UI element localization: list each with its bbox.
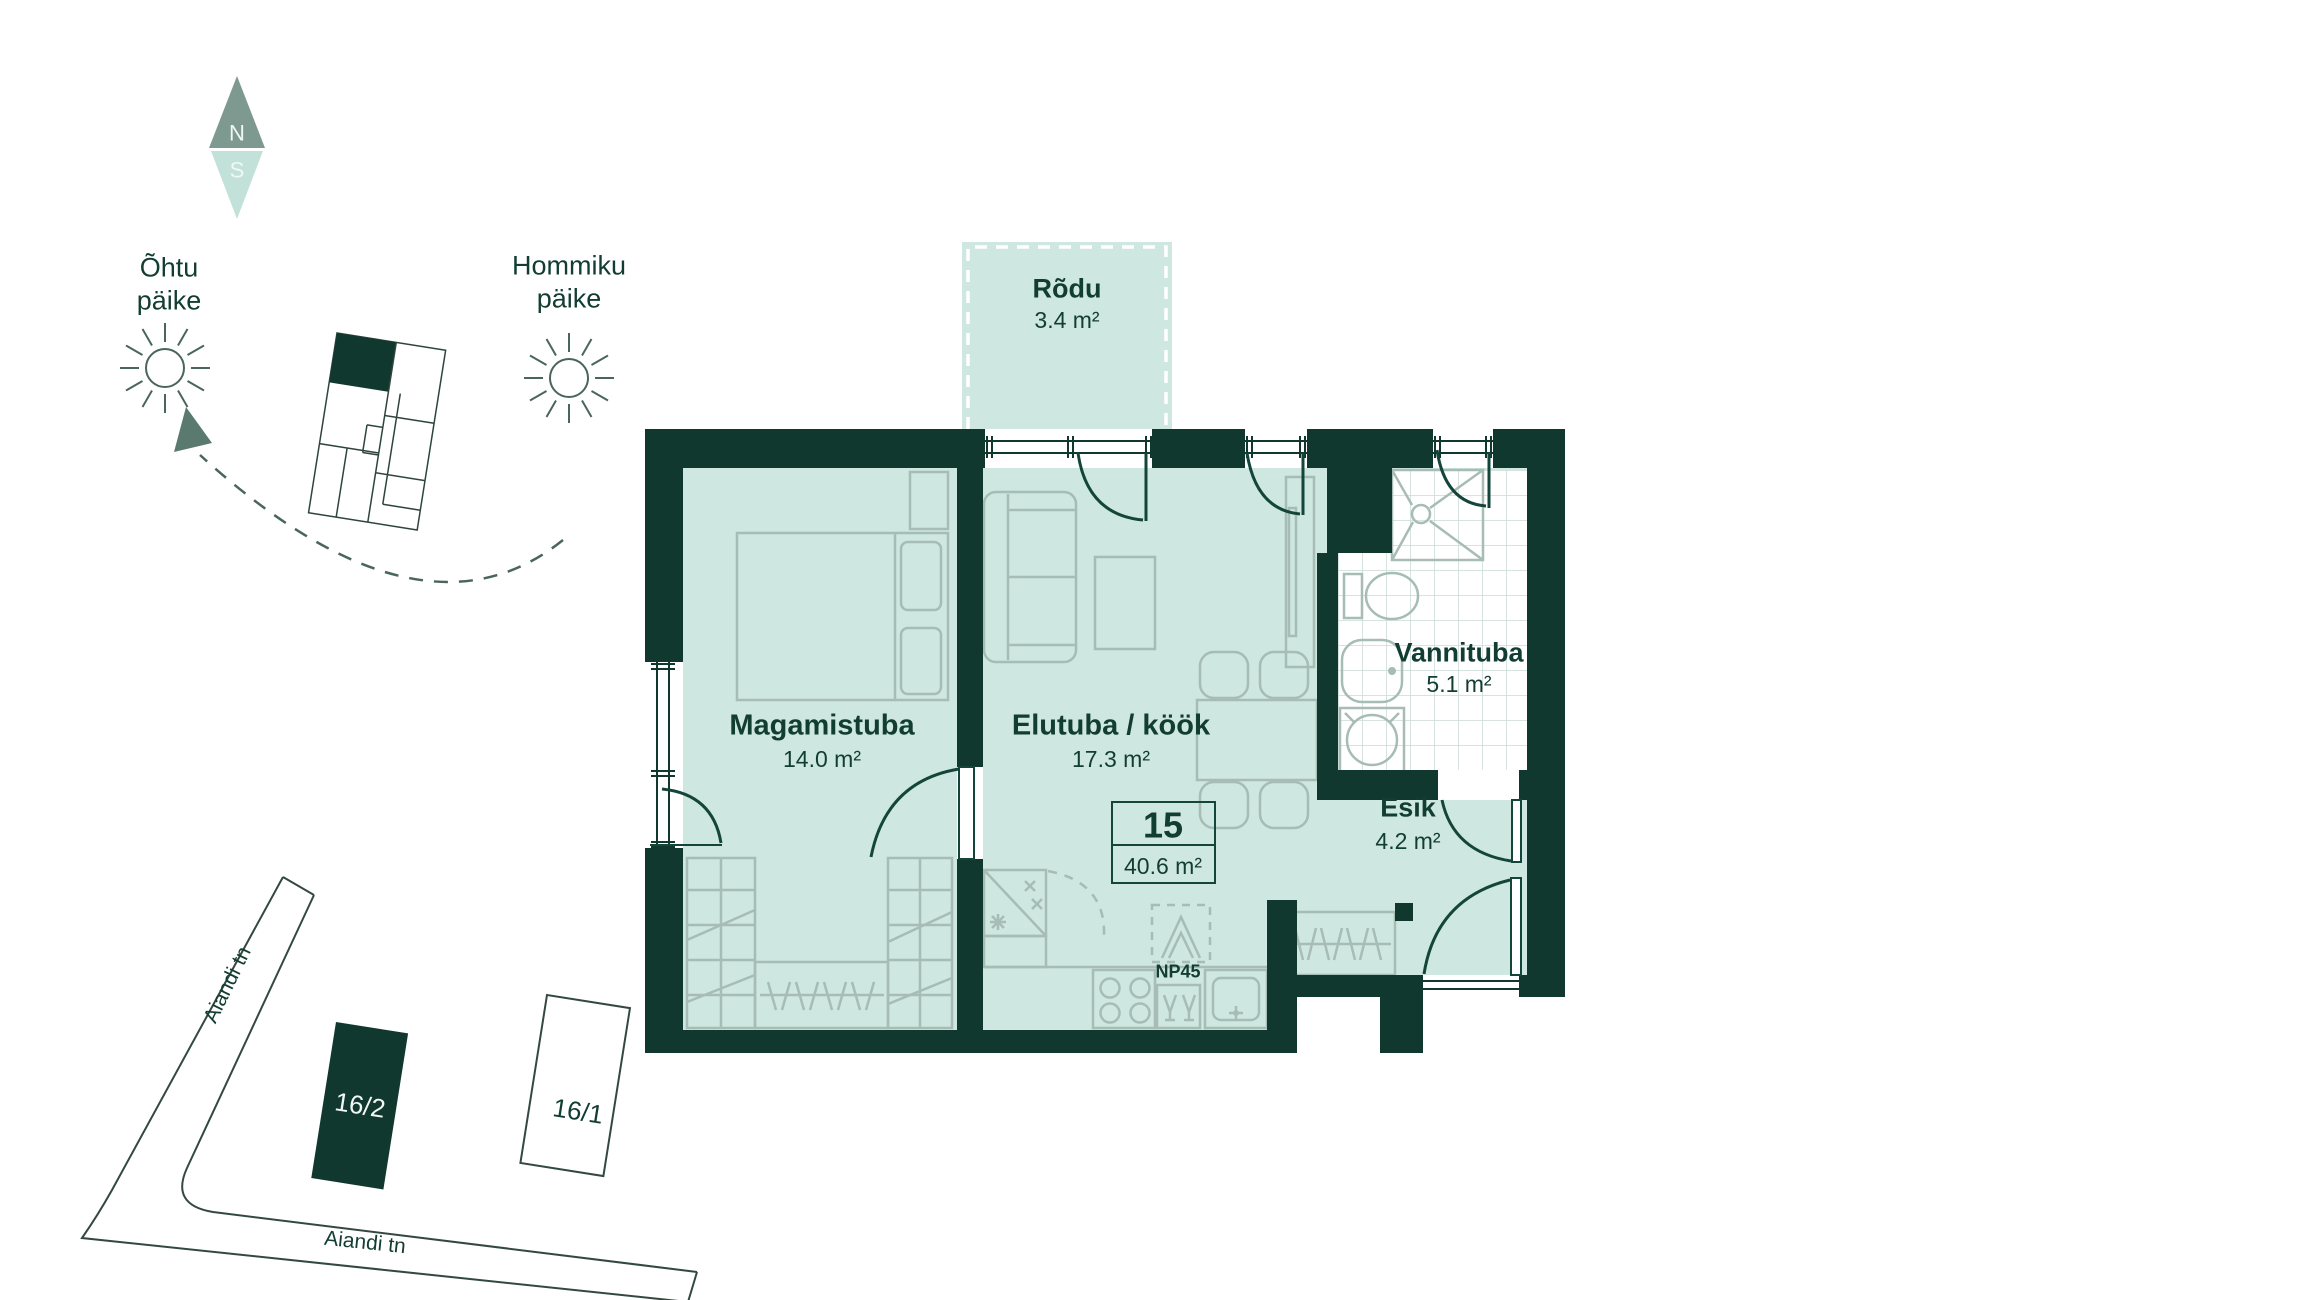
apartment-number: 15 <box>1143 804 1183 845</box>
sun-path-arrowhead <box>174 407 212 452</box>
exterior-patch <box>1423 997 1565 1057</box>
balcony-area <box>962 242 1172 429</box>
compass-south-label: S <box>230 157 245 182</box>
room-name-living: Elutuba / köök <box>1012 709 1210 742</box>
morning-sun-label-line2: päike <box>537 283 602 314</box>
compass-north-label: N <box>229 120 245 145</box>
floorplan-page: N S Õhtu päike Hommiku päike Rõdu 3.4 m²… <box>0 0 2310 1300</box>
room-area-balcony: 3.4 m² <box>1034 307 1099 333</box>
evening-sun-label-line2: päike <box>137 285 202 316</box>
sun-evening-icon <box>120 323 210 413</box>
room-name-hallway: Esik <box>1380 792 1436 823</box>
room-name-bedroom: Magamistuba <box>729 709 914 742</box>
room-name-balcony: Rõdu <box>1033 273 1102 304</box>
evening-sun-label-line1: Õhtu <box>140 252 199 283</box>
compass-icon <box>209 76 265 219</box>
morning-sun-label-line1: Hommiku <box>512 250 626 281</box>
exterior-patch <box>1297 997 1380 1057</box>
appliance-label-np45: NP45 <box>1155 962 1200 983</box>
room-name-bathroom: Vannituba <box>1394 637 1523 668</box>
site-building-adjacent <box>520 995 630 1176</box>
building-locator <box>309 333 446 530</box>
building-locator-highlight-unit <box>329 333 396 392</box>
room-area-living: 17.3 m² <box>1072 746 1150 772</box>
sun-morning-icon <box>524 333 614 423</box>
room-area-bathroom: 5.1 m² <box>1426 671 1491 697</box>
room-area-bedroom: 14.0 m² <box>783 746 861 772</box>
apartment-total-area: 40.6 m² <box>1124 853 1202 879</box>
room-area-hallway: 4.2 m² <box>1375 828 1440 854</box>
